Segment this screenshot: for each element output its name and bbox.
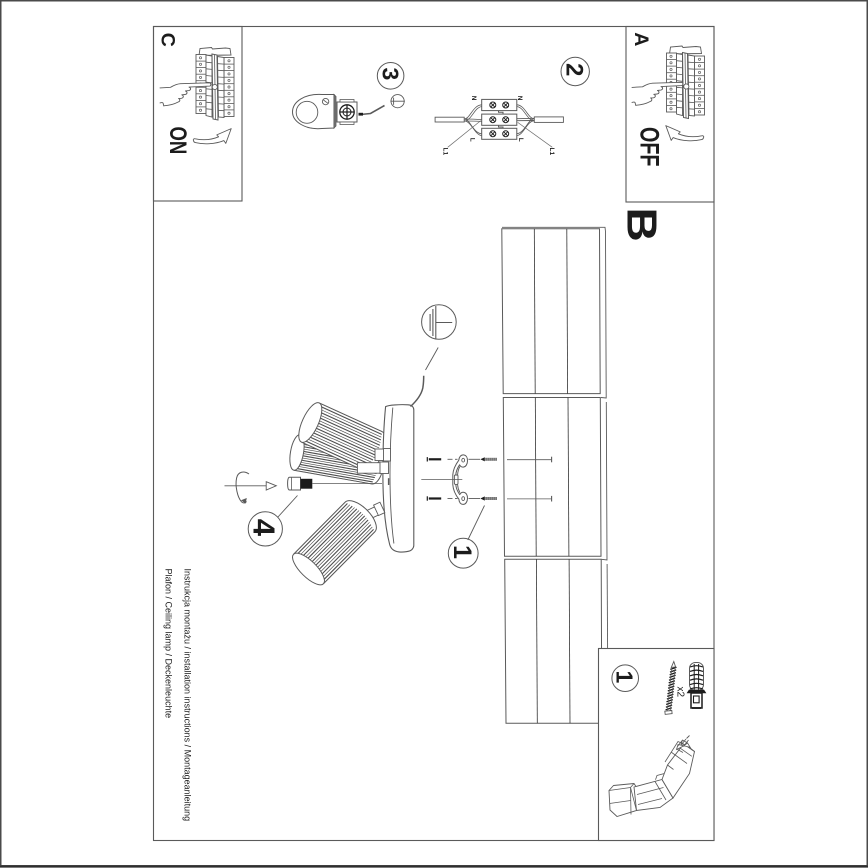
svg-text:Instrukcja montażu / installat: Instrukcja montażu / installation instru… xyxy=(182,569,192,822)
svg-text:B: B xyxy=(618,208,665,242)
svg-text:N: N xyxy=(470,96,477,101)
svg-text:3: 3 xyxy=(378,68,404,81)
svg-text:OFF: OFF xyxy=(634,127,664,166)
svg-text:Plafon / Ceiling lamp / Decken: Plafon / Ceiling lamp / Deckenleuchte xyxy=(163,569,173,719)
svg-text:L1: L1 xyxy=(548,148,555,156)
svg-text:C: C xyxy=(157,33,179,47)
svg-text:L1: L1 xyxy=(442,148,449,156)
svg-text:N: N xyxy=(516,96,523,101)
svg-text:L: L xyxy=(469,138,476,142)
svg-text:ON: ON xyxy=(164,127,191,155)
svg-text:A: A xyxy=(630,32,652,46)
svg-text:L: L xyxy=(517,138,524,142)
svg-text:1: 1 xyxy=(612,671,638,684)
svg-text:x2: x2 xyxy=(675,687,686,698)
svg-text:2: 2 xyxy=(561,63,588,76)
svg-text:4: 4 xyxy=(247,519,282,537)
svg-text:1: 1 xyxy=(448,545,476,559)
